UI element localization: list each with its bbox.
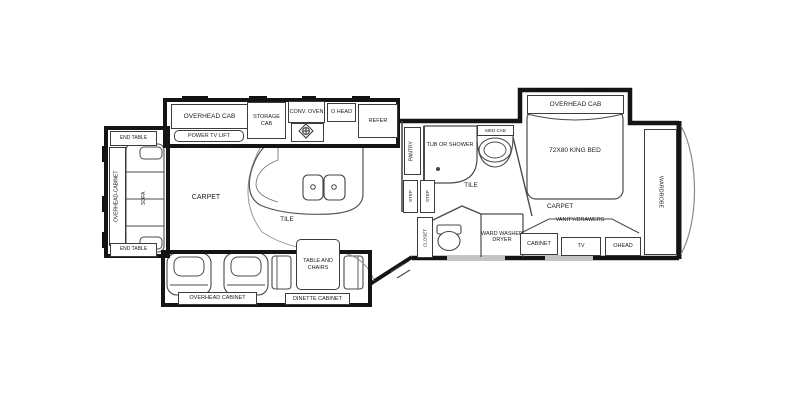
vanity-drawers-label: VANITY/DRAWERS bbox=[543, 215, 617, 225]
king-bed-label: 72X80 KING BED bbox=[549, 140, 601, 162]
sofa-label: SOFA bbox=[133, 168, 157, 228]
overhead-cabinet-rear: OVERHEAD-CABINET bbox=[109, 147, 126, 246]
front-cap-curve bbox=[681, 126, 695, 254]
bedroom-ohead: OHEAD bbox=[605, 237, 641, 256]
conv-oven: CONV. OVEN bbox=[288, 101, 325, 123]
dinette-cabinet: DINETTE CABINET bbox=[285, 293, 350, 305]
step-1: STEP bbox=[403, 180, 418, 213]
cooktop-box bbox=[291, 123, 324, 142]
overhead-cabinet-dinette: OVERHEAD CABINET bbox=[178, 292, 257, 305]
kitchen-sink bbox=[303, 175, 345, 200]
pantry: PANTRY bbox=[404, 127, 421, 175]
bath-sink bbox=[477, 136, 513, 167]
tile-kitchen-label: TILE bbox=[272, 214, 302, 225]
storage-cab: STORAGE CAB bbox=[247, 102, 286, 139]
table-and-chairs: TABLE AND CHAIRS bbox=[296, 239, 340, 290]
overhead-cab-entertainment: OVERHEAD CAB bbox=[171, 104, 248, 129]
overhead-cab-bedroom: OVERHEAD CAB bbox=[527, 95, 624, 114]
med-cab: MED CAB bbox=[477, 125, 514, 136]
carpet-living-label: CARPET bbox=[183, 192, 229, 204]
step-2: STEP bbox=[420, 180, 435, 213]
tile-bath-label: TILE bbox=[450, 180, 492, 191]
o-head-kitchen: O HEAD bbox=[327, 103, 356, 122]
closet: CLOSET bbox=[417, 217, 433, 258]
tub-or-shower-label: TUB OR SHOWER bbox=[426, 134, 474, 156]
power-tv-lift: POWER TV LIFT bbox=[174, 130, 244, 142]
bedroom-cabinet: CABINET bbox=[520, 233, 558, 255]
bedroom-tv: TV bbox=[561, 237, 601, 256]
end-table-top: END TABLE bbox=[110, 131, 157, 146]
wardrobe: WARDROBE bbox=[644, 129, 677, 255]
floorplan-canvas: END TABLE OVERHEAD-CABINET SOFA END TABL… bbox=[0, 0, 800, 400]
end-table-bottom: END TABLE bbox=[110, 243, 157, 257]
toilet-icon bbox=[437, 225, 461, 251]
refer: REFER bbox=[358, 104, 398, 138]
fireplace-option: FIREPLACE OPTION bbox=[166, 143, 252, 152]
carpet-bedroom-label: CARPET bbox=[538, 201, 582, 212]
